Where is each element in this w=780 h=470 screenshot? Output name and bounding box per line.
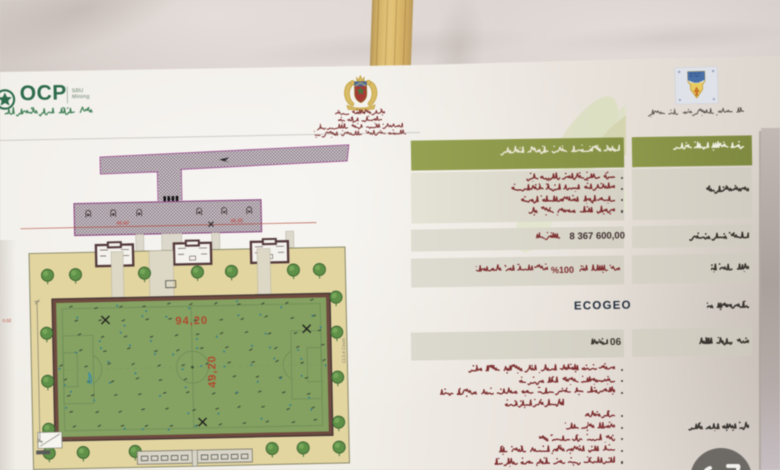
- svg-text:49,20: 49,20: [206, 355, 219, 388]
- svg-text:94,20: 94,20: [175, 315, 208, 328]
- svg-text:Cl.3.4 Cours: Cl.3.4 Cours: [341, 337, 347, 363]
- svg-text:46.60: 46.60: [230, 218, 243, 224]
- svg-text:46.60: 46.60: [116, 220, 129, 226]
